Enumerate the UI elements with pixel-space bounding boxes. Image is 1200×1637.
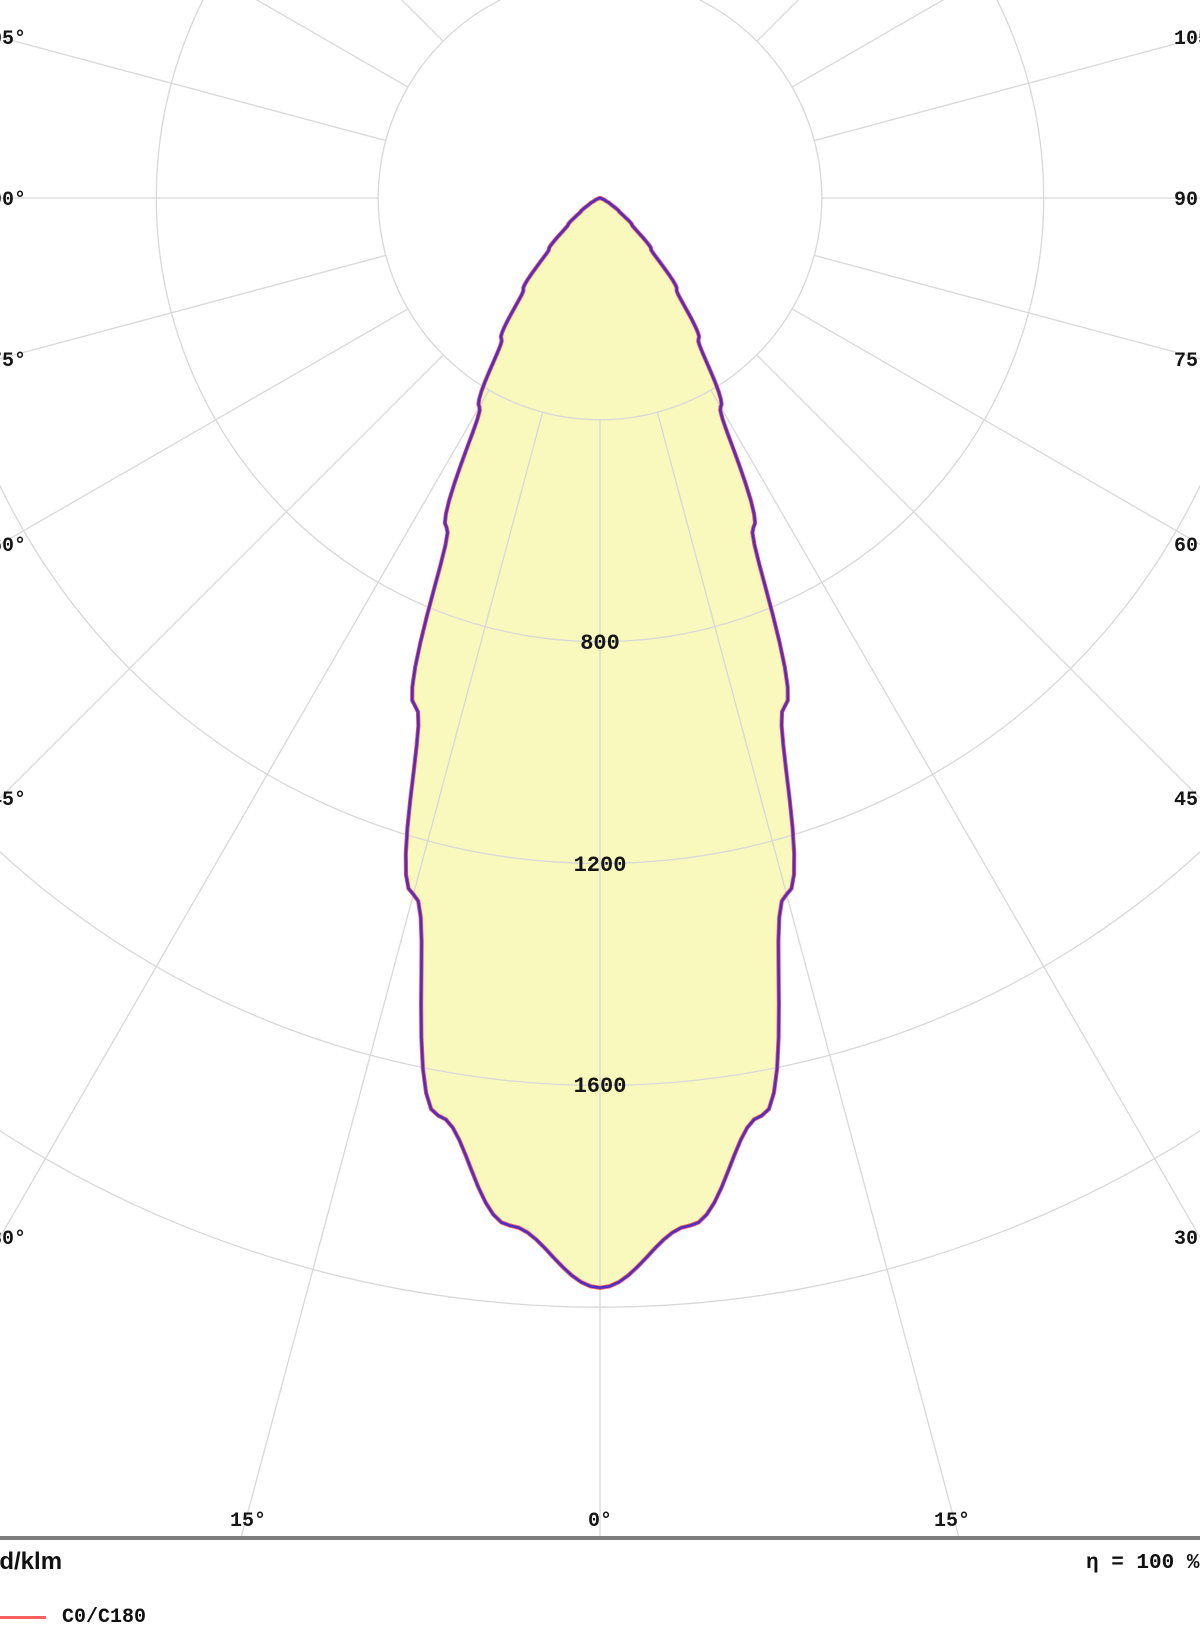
angle-label-right-45: 45° — [1174, 789, 1200, 812]
legend-item-c0-c180: C0/C180 — [0, 1606, 146, 1629]
grid-radial-m135 — [0, 0, 443, 41]
grid-radial-75 — [814, 255, 1200, 819]
legend-label-c0-c180: C0/C180 — [62, 1606, 146, 1629]
legend-swatch-c0-c180 — [0, 1616, 46, 1619]
unit-label: cd/klm — [0, 1548, 62, 1576]
angle-label-bottom-left-15: 15° — [230, 1510, 266, 1533]
grid-radial-m120 — [0, 0, 408, 87]
angle-label-left-30: 30° — [0, 1228, 26, 1251]
angle-label-left-60: 60° — [0, 535, 26, 558]
angle-label-left-75: 75° — [0, 350, 26, 373]
grid-radial-120 — [792, 0, 1200, 87]
angle-label-bottom-0: 0° — [588, 1510, 612, 1533]
angle-label-right-60: 60° — [1174, 535, 1200, 558]
grid-radial-135 — [757, 0, 1200, 41]
angle-label-bottom-15: 15° — [934, 1510, 970, 1533]
grid-radial-m75 — [0, 255, 386, 819]
grid-radial-m45 — [0, 355, 443, 1536]
diagram-footer: cd/klm η = 100 % C0/C180 — [0, 1536, 1200, 1637]
angle-label-left-105: 105° — [0, 28, 26, 51]
angle-label-right-30: 30° — [1174, 1228, 1200, 1251]
angle-label-left-90: 90° — [0, 189, 26, 212]
polar-diagram-svg: 80012001600105°105°90°90°75°75°60°60°45°… — [0, 0, 1200, 1536]
angle-label-left-45: 45° — [0, 789, 26, 812]
efficiency-label: η = 100 % — [1086, 1552, 1199, 1575]
polar-diagram: 80012001600105°105°90°90°75°75°60°60°45°… — [0, 0, 1200, 1536]
grid-radial-45 — [757, 355, 1200, 1536]
angle-label-right-105: 105° — [1174, 28, 1200, 51]
angle-label-right-90: 90° — [1174, 189, 1200, 212]
ring-label-800: 800 — [580, 631, 620, 656]
ring-label-1200: 1200 — [574, 853, 627, 878]
grid-radial-m30 — [0, 390, 489, 1536]
ring-label-1600: 1600 — [574, 1074, 627, 1099]
grid-radial-30 — [711, 390, 1200, 1536]
angle-label-right-75: 75° — [1174, 350, 1200, 373]
